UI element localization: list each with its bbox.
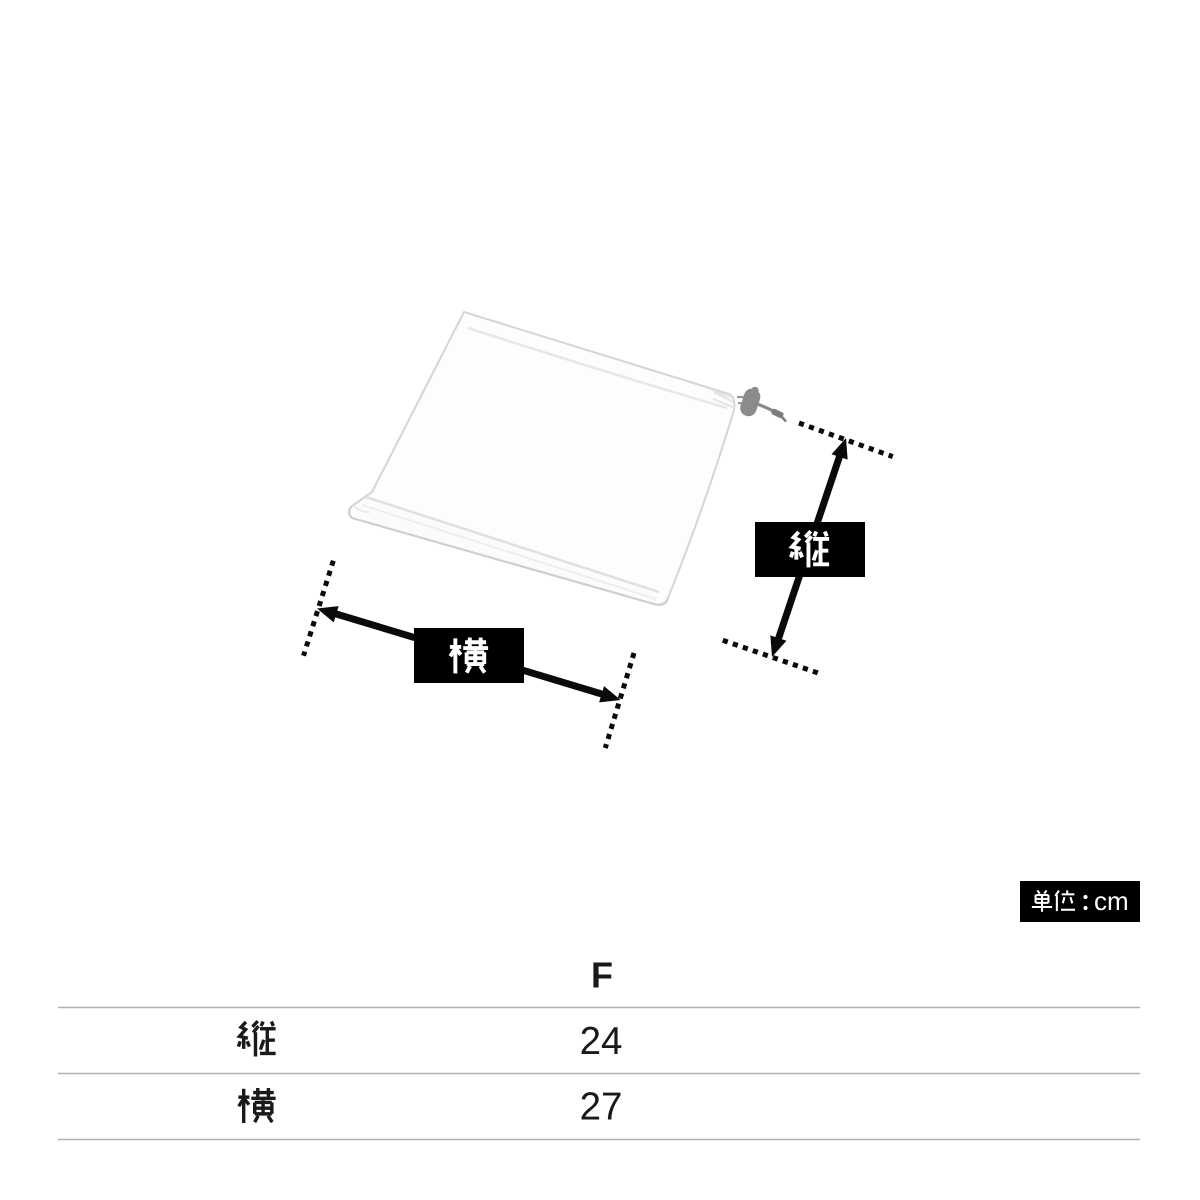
- svg-text:cm: cm: [1094, 886, 1129, 916]
- svg-text:F: F: [591, 955, 613, 996]
- svg-text:27: 27: [580, 1086, 623, 1129]
- svg-text:24: 24: [580, 1020, 623, 1063]
